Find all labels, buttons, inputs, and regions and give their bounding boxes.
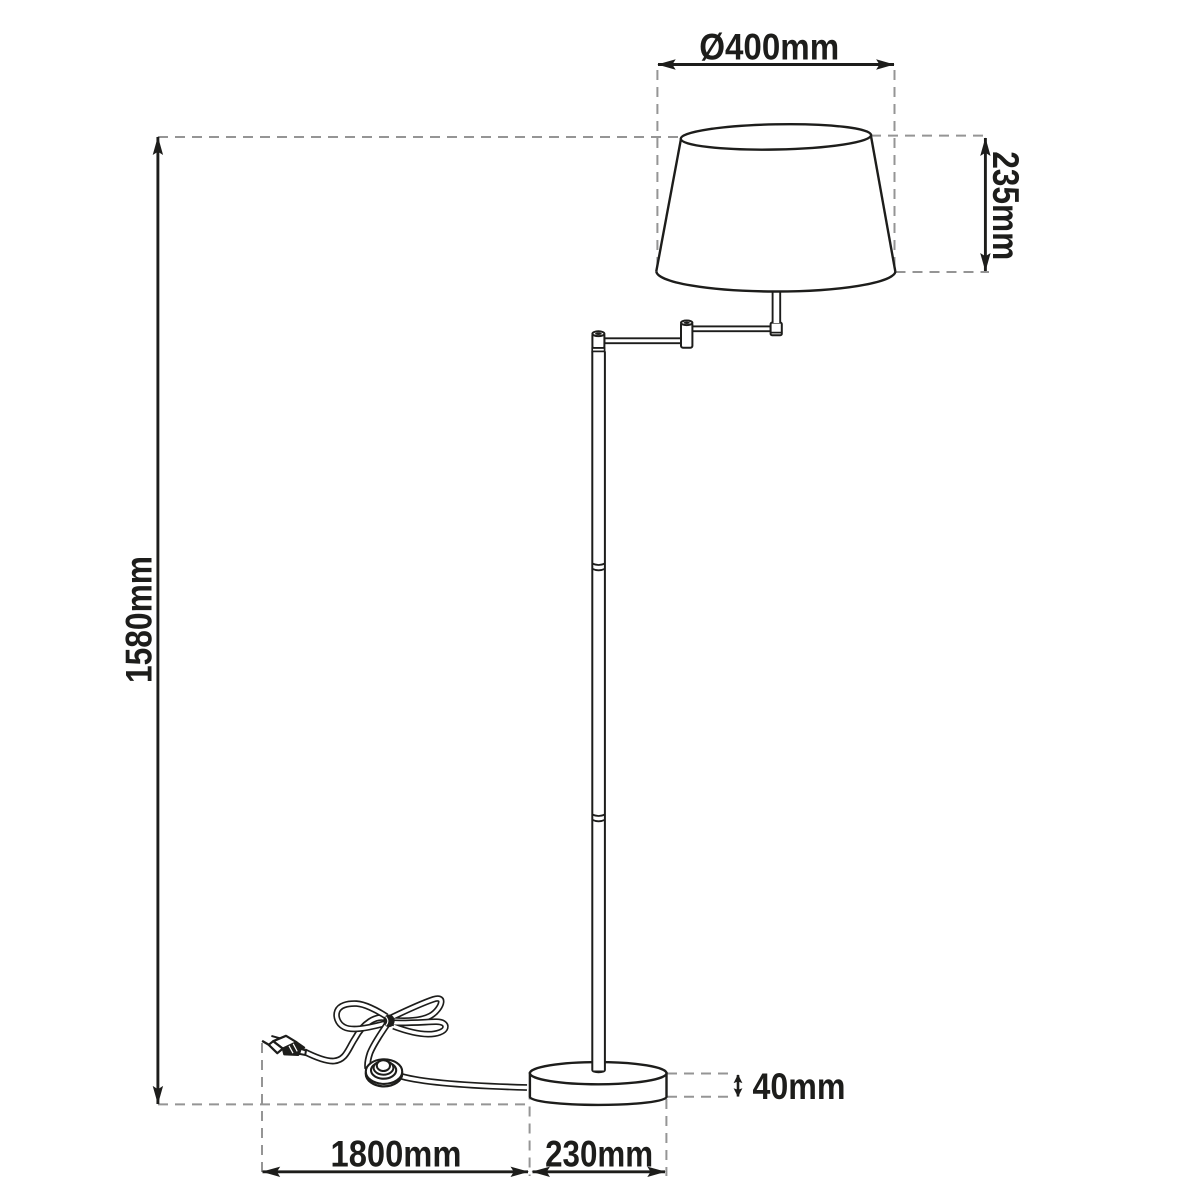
svg-text:1580mm: 1580mm bbox=[118, 556, 159, 683]
svg-text:235mm: 235mm bbox=[985, 151, 1026, 260]
svg-text:1800mm: 1800mm bbox=[331, 1134, 462, 1175]
svg-text:Ø400mm: Ø400mm bbox=[699, 27, 839, 68]
svg-text:40mm: 40mm bbox=[753, 1066, 846, 1107]
svg-text:230mm: 230mm bbox=[545, 1134, 653, 1175]
